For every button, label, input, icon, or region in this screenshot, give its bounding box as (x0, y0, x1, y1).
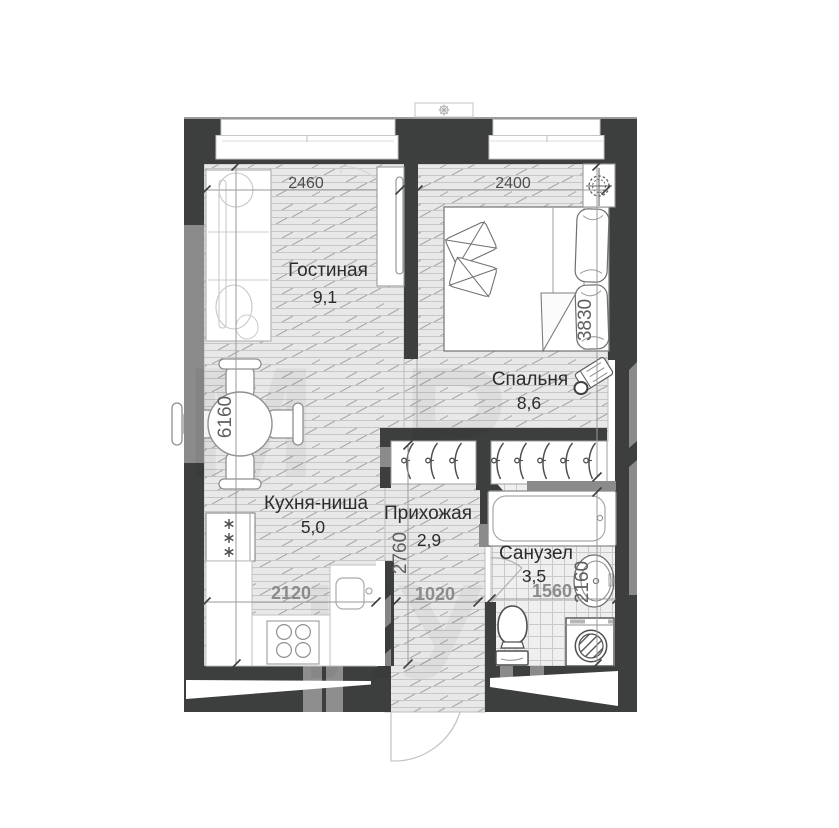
svg-text:9,1: 9,1 (313, 287, 337, 307)
svg-text:3830: 3830 (575, 299, 596, 341)
svg-text:Гостиная: Гостиная (288, 260, 368, 281)
svg-text:2160: 2160 (572, 561, 593, 603)
svg-text:Спальня: Спальня (492, 369, 568, 390)
svg-text:2120: 2120 (271, 583, 311, 603)
svg-text:Прихожая: Прихожая (384, 503, 472, 524)
svg-text:3,5: 3,5 (522, 566, 546, 586)
svg-text:8,6: 8,6 (517, 393, 541, 413)
svg-text:5,0: 5,0 (301, 517, 326, 537)
svg-text:У: У (398, 556, 484, 707)
svg-text:Кухня-ниша: Кухня-ниша (264, 493, 369, 514)
svg-text:2400: 2400 (495, 175, 531, 192)
svg-text:1020: 1020 (415, 584, 455, 604)
svg-text:Р: Р (402, 335, 507, 511)
svg-text:2760: 2760 (390, 532, 411, 574)
svg-text:Санузел: Санузел (499, 543, 573, 564)
svg-text:2460: 2460 (288, 175, 324, 192)
svg-text:2,9: 2,9 (417, 530, 441, 550)
svg-text:6160: 6160 (215, 396, 236, 438)
